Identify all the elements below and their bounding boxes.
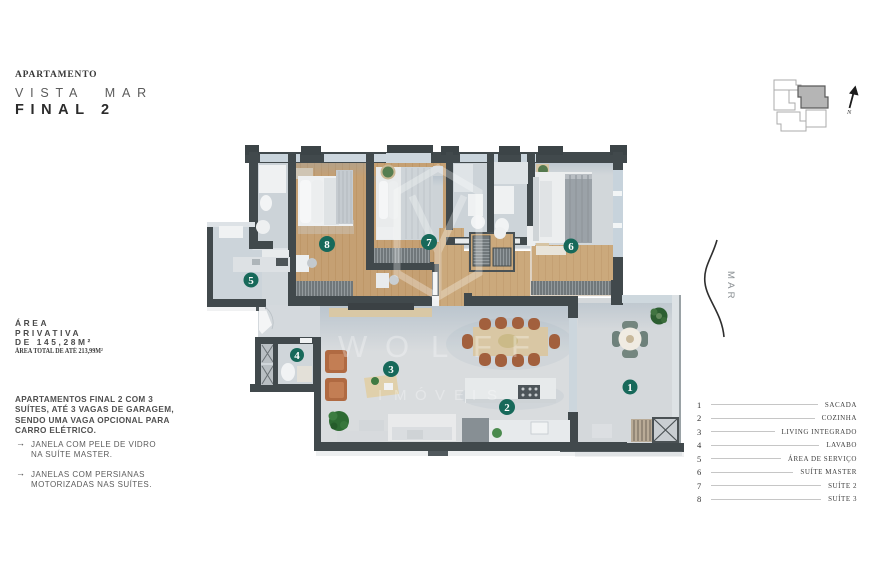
svg-text:V: V [435,387,445,404]
svg-text:O: O [385,329,409,364]
svg-text:M: M [394,387,407,404]
svg-text:Ó: Ó [415,387,427,404]
svg-text:N: N [846,109,852,116]
svg-text:8: 8 [324,239,330,251]
svg-text:7: 7 [426,237,432,249]
svg-text:MAR: MAR [725,271,736,302]
svg-text:L: L [431,329,448,364]
svg-text:4: 4 [294,350,300,362]
svg-text:6: 6 [568,241,574,253]
svg-text:5: 5 [248,275,254,287]
svg-text:I: I [378,387,382,404]
svg-text:E: E [454,387,464,404]
svg-text:F: F [473,329,492,364]
svg-text:S: S [487,387,497,404]
svg-text:F: F [511,329,530,364]
svg-text:1: 1 [627,382,633,394]
svg-text:2: 2 [504,402,510,414]
svg-text:W: W [338,329,368,364]
svg-text:I: I [472,387,476,404]
svg-text:3: 3 [388,364,394,376]
